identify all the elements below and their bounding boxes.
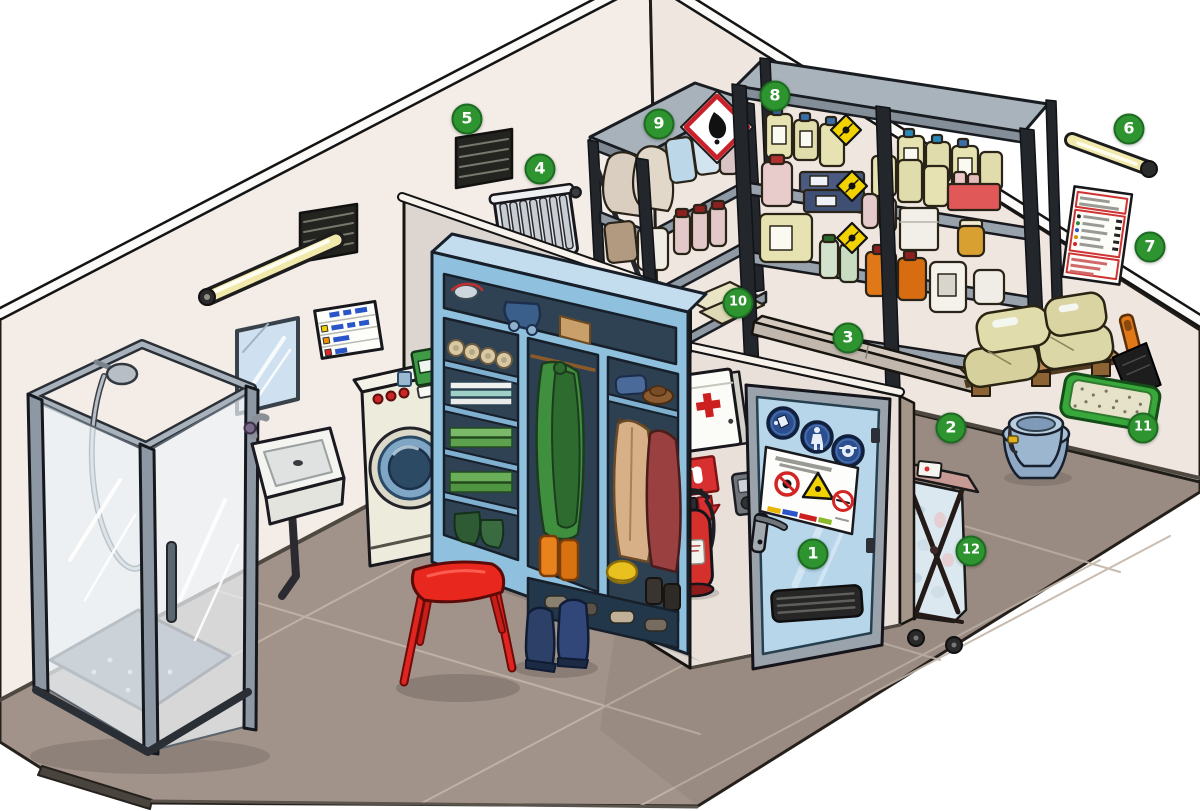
hotspot-retention-sill[interactable]: 3: [833, 323, 864, 354]
storage-room-illustration: 1 2 3 4 5 6 7 8 9 10 11 12: [0, 0, 1200, 811]
strip-light-right: [1072, 140, 1157, 177]
buckets: [1003, 413, 1072, 486]
ventilation-grille: [456, 129, 512, 188]
hotspot-chemical-shelf-large[interactable]: 8: [760, 81, 791, 112]
measuring-cup: [398, 372, 411, 386]
hotspot-laundry-cart[interactable]: 12: [956, 536, 987, 567]
hotspot-ventilation-grille[interactable]: 5: [452, 104, 483, 135]
shower-door-handle: [167, 542, 176, 622]
hotspot-pallet-storage[interactable]: 2: [936, 413, 967, 444]
hotspot-radiator[interactable]: 4: [525, 154, 556, 185]
emergency-notice: [1062, 186, 1132, 284]
hotspot-absorbent-tray[interactable]: 11: [1128, 413, 1159, 444]
entrance-door: [746, 385, 890, 669]
hotspot-lower-shelf-tray[interactable]: 10: [723, 288, 754, 319]
door-vent: [771, 585, 863, 622]
hotspot-strip-light[interactable]: 6: [1114, 114, 1145, 145]
hotspot-chemical-shelf-small[interactable]: 9: [644, 109, 675, 140]
hotspot-entrance-door[interactable]: 1: [798, 539, 829, 570]
wall-chart: [315, 301, 383, 358]
room-scene: [0, 0, 1200, 811]
hotspot-emergency-notice[interactable]: 7: [1135, 232, 1166, 263]
